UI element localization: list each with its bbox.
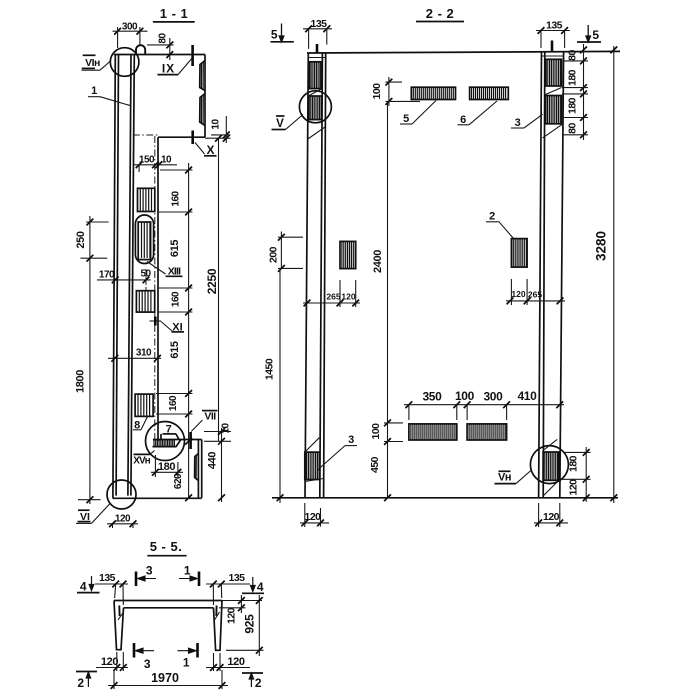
svg-text:615: 615 — [169, 240, 181, 257]
svg-text:120: 120 — [101, 656, 118, 668]
svg-text:10: 10 — [211, 119, 222, 130]
svg-text:135: 135 — [310, 18, 327, 30]
svg-text:100: 100 — [370, 423, 382, 440]
svg-text:5 - 5.: 5 - 5. — [150, 539, 183, 554]
svg-text:120: 120 — [511, 289, 525, 299]
svg-text:135: 135 — [228, 572, 245, 584]
svg-text:X: X — [206, 143, 214, 157]
svg-text:160: 160 — [171, 190, 182, 206]
svg-text:200: 200 — [268, 246, 280, 263]
svg-text:120: 120 — [341, 292, 355, 302]
svg-text:100: 100 — [455, 389, 475, 403]
svg-text:5: 5 — [403, 113, 409, 125]
svg-text:4: 4 — [257, 580, 264, 594]
svg-text:VII: VII — [204, 411, 216, 423]
svg-text:1: 1 — [184, 564, 191, 578]
svg-text:2400: 2400 — [372, 250, 384, 273]
svg-text:80: 80 — [567, 123, 579, 134]
svg-text:150: 150 — [139, 155, 155, 166]
svg-text:1800: 1800 — [75, 370, 87, 393]
svg-text:2250: 2250 — [205, 268, 219, 294]
svg-text:180: 180 — [568, 455, 580, 472]
svg-text:10: 10 — [220, 423, 231, 434]
svg-text:160: 160 — [171, 291, 182, 307]
svg-text:120: 120 — [227, 656, 244, 668]
svg-text:1: 1 — [91, 85, 97, 97]
svg-text:3: 3 — [144, 657, 151, 671]
svg-text:5: 5 — [592, 28, 599, 42]
svg-text:1450: 1450 — [264, 358, 276, 380]
svg-text:180: 180 — [567, 97, 579, 114]
svg-text:615: 615 — [169, 341, 181, 358]
svg-text:1: 1 — [183, 656, 190, 670]
svg-text:IX: IX — [162, 62, 175, 76]
svg-text:10: 10 — [161, 155, 172, 166]
svg-text:1 - 1: 1 - 1 — [160, 6, 189, 21]
svg-text:3280: 3280 — [594, 231, 609, 261]
svg-text:2: 2 — [489, 211, 495, 223]
svg-text:2: 2 — [255, 676, 262, 690]
svg-text:410: 410 — [517, 389, 537, 403]
svg-text:160: 160 — [168, 395, 179, 411]
svg-text:Vн: Vн — [498, 472, 511, 484]
svg-text:3: 3 — [348, 434, 354, 446]
svg-text:6: 6 — [460, 114, 466, 126]
svg-text:80: 80 — [158, 33, 169, 44]
svg-text:350: 350 — [422, 390, 442, 404]
svg-text:1970: 1970 — [151, 671, 179, 685]
svg-text:440: 440 — [207, 452, 219, 469]
svg-text:2 - 2: 2 - 2 — [426, 6, 455, 21]
svg-text:135: 135 — [546, 20, 563, 32]
svg-text:300: 300 — [483, 390, 503, 404]
svg-text:3: 3 — [515, 117, 521, 129]
svg-text:180: 180 — [567, 69, 579, 86]
svg-text:2: 2 — [77, 676, 84, 690]
svg-text:120: 120 — [543, 511, 560, 523]
svg-text:620: 620 — [173, 473, 184, 489]
svg-text:V: V — [276, 118, 284, 130]
svg-text:310: 310 — [136, 348, 152, 359]
svg-text:4: 4 — [80, 580, 87, 594]
svg-text:80: 80 — [567, 50, 579, 61]
svg-text:180: 180 — [158, 461, 175, 473]
svg-text:5: 5 — [271, 28, 278, 42]
svg-text:XVн: XVн — [133, 456, 150, 467]
svg-text:120: 120 — [568, 479, 580, 496]
svg-text:265: 265 — [528, 290, 542, 300]
svg-text:120: 120 — [226, 607, 238, 624]
svg-text:250: 250 — [75, 231, 87, 248]
svg-text:100: 100 — [371, 83, 383, 100]
svg-text:135: 135 — [99, 572, 116, 584]
svg-text:170: 170 — [99, 270, 115, 281]
svg-text:120: 120 — [115, 514, 131, 525]
svg-text:3: 3 — [146, 564, 153, 578]
svg-text:265: 265 — [326, 292, 340, 302]
svg-text:925: 925 — [243, 614, 257, 634]
svg-text:450: 450 — [369, 456, 381, 473]
svg-text:VIн: VIн — [85, 57, 100, 69]
